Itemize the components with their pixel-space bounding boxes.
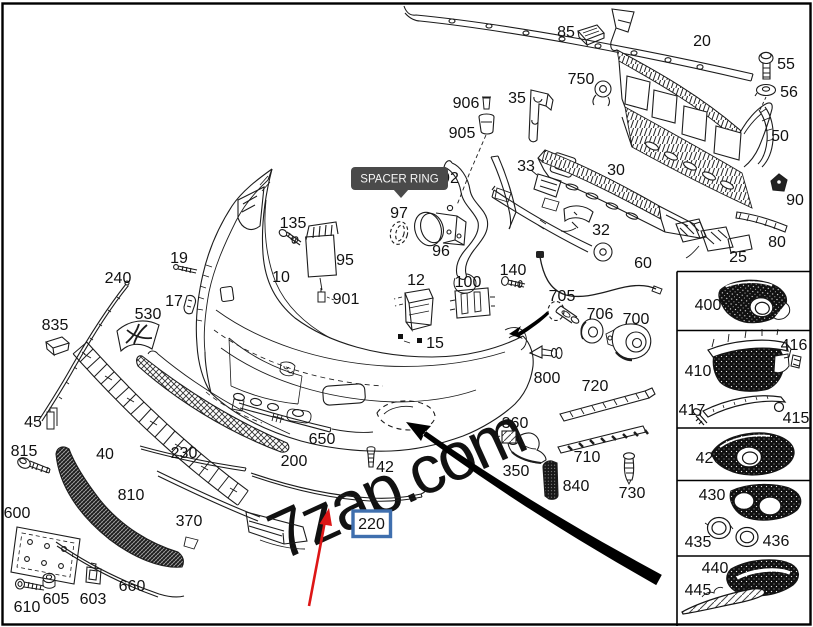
svg-text:40: 40	[96, 446, 114, 463]
svg-text:730: 730	[619, 485, 646, 502]
svg-text:30: 30	[607, 162, 625, 179]
svg-text:435: 435	[685, 534, 712, 551]
svg-text:905: 905	[449, 125, 476, 142]
svg-text:360: 360	[502, 415, 529, 432]
svg-text:410: 410	[685, 363, 712, 380]
svg-text:530: 530	[135, 306, 162, 323]
svg-text:17: 17	[165, 293, 183, 310]
svg-text:815: 815	[11, 443, 38, 460]
svg-text:416: 416	[781, 337, 808, 354]
svg-text:33: 33	[517, 158, 535, 175]
svg-text:50: 50	[771, 128, 789, 145]
svg-text:603: 603	[80, 591, 107, 608]
svg-text:200: 200	[281, 453, 308, 470]
svg-text:85: 85	[557, 24, 575, 41]
svg-text:705: 705	[549, 288, 576, 305]
svg-text:445: 445	[685, 582, 712, 599]
svg-text:600: 600	[4, 505, 31, 522]
svg-text:230: 230	[171, 445, 198, 462]
svg-text:430: 430	[699, 487, 726, 504]
svg-text:25: 25	[729, 249, 747, 266]
svg-text:835: 835	[42, 317, 69, 334]
svg-text:45: 45	[24, 414, 42, 431]
svg-text:605: 605	[43, 591, 70, 608]
svg-text:80: 80	[768, 234, 786, 251]
svg-text:720: 720	[582, 378, 609, 395]
svg-text:42: 42	[376, 459, 394, 476]
svg-text:19: 19	[170, 250, 188, 267]
svg-text:60: 60	[634, 255, 652, 272]
svg-text:840: 840	[563, 478, 590, 495]
svg-text:420: 420	[696, 450, 723, 467]
svg-text:610: 610	[14, 599, 41, 616]
svg-text:12: 12	[407, 272, 425, 289]
svg-text:20: 20	[693, 33, 711, 50]
svg-text:240: 240	[105, 270, 132, 287]
svg-text:55: 55	[777, 56, 795, 73]
svg-text:650: 650	[309, 431, 336, 448]
svg-text:96: 96	[432, 243, 450, 260]
svg-text:370: 370	[176, 513, 203, 530]
svg-text:97: 97	[390, 205, 408, 222]
svg-text:706: 706	[587, 306, 614, 323]
svg-text:810: 810	[118, 487, 145, 504]
svg-text:10: 10	[272, 269, 290, 286]
svg-text:SPACER RING: SPACER RING	[360, 174, 438, 186]
svg-text:32: 32	[592, 222, 610, 239]
svg-text:440: 440	[702, 560, 729, 577]
svg-text:800: 800	[534, 370, 561, 387]
svg-text:220: 220	[358, 516, 385, 533]
svg-text:35: 35	[508, 90, 526, 107]
svg-text:90: 90	[786, 192, 804, 209]
svg-text:710: 710	[574, 449, 601, 466]
svg-text:15: 15	[426, 335, 444, 352]
svg-text:350: 350	[503, 463, 530, 480]
svg-text:135: 135	[280, 215, 307, 232]
svg-text:750: 750	[568, 71, 595, 88]
svg-text:140: 140	[500, 262, 527, 279]
svg-text:436: 436	[763, 533, 790, 550]
svg-text:660: 660	[119, 578, 146, 595]
svg-text:906: 906	[453, 95, 480, 112]
svg-text:417: 417	[679, 402, 706, 419]
svg-text:415: 415	[783, 410, 810, 427]
svg-text:100: 100	[455, 274, 482, 291]
svg-text:56: 56	[780, 84, 798, 101]
svg-text:95: 95	[336, 252, 354, 269]
svg-text:700: 700	[623, 311, 650, 328]
svg-text:901: 901	[333, 291, 360, 308]
svg-text:400: 400	[695, 297, 722, 314]
